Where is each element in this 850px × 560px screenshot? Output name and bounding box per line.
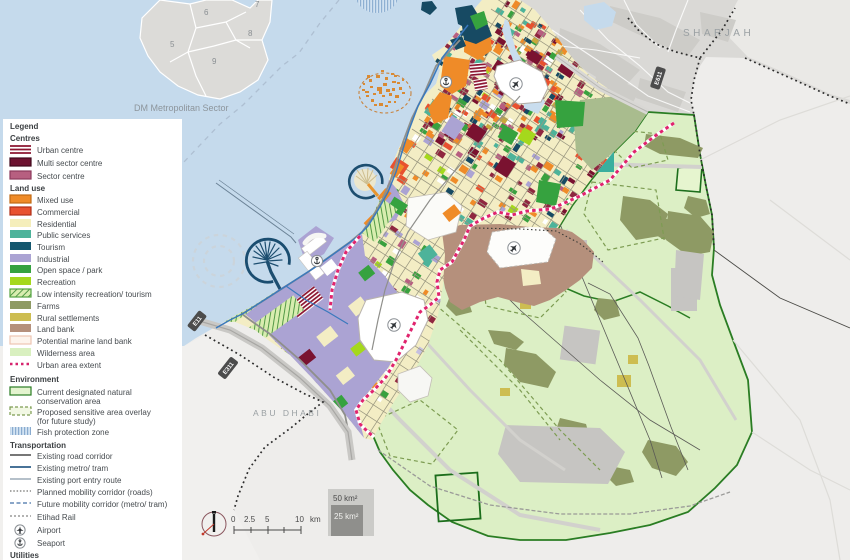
svg-text:0: 0 [231, 515, 236, 524]
svg-text:6: 6 [204, 8, 209, 17]
svg-text:Existing road corridor: Existing road corridor [37, 452, 113, 461]
svg-text:Commercial: Commercial [37, 208, 80, 217]
svg-text:Tourism: Tourism [37, 243, 65, 252]
svg-text:2.5: 2.5 [244, 515, 256, 524]
svg-text:25 km²: 25 km² [334, 512, 359, 521]
svg-text:Transportation: Transportation [10, 441, 66, 450]
svg-text:Existing port entry route: Existing port entry route [37, 476, 122, 485]
svg-text:Seaport: Seaport [37, 539, 66, 548]
svg-text:Farms: Farms [37, 302, 60, 311]
svg-text:Wilderness area: Wilderness area [37, 349, 95, 358]
svg-text:Urban area extent: Urban area extent [37, 361, 102, 370]
svg-text:km: km [310, 515, 321, 524]
svg-text:Residential: Residential [37, 220, 77, 229]
svg-text:Urban centre: Urban centre [37, 146, 84, 155]
svg-text:Potential marine land bank: Potential marine land bank [37, 337, 133, 346]
svg-text:Sector centre: Sector centre [37, 172, 85, 181]
svg-text:Proposed sensitive area overla: Proposed sensitive area overlay [37, 408, 151, 417]
svg-text:Centres: Centres [10, 134, 40, 143]
svg-text:ABU DHABI: ABU DHABI [253, 408, 321, 418]
svg-text:5: 5 [265, 515, 270, 524]
svg-text:Fish protection zone: Fish protection zone [37, 428, 110, 437]
svg-text:8: 8 [248, 29, 253, 38]
svg-text:Rural settlements: Rural settlements [37, 314, 99, 323]
svg-text:DM Metropolitan Sector: DM Metropolitan Sector [134, 103, 229, 113]
svg-text:Multi sector centre: Multi sector centre [37, 159, 103, 168]
svg-text:Environment: Environment [10, 375, 59, 384]
svg-text:Planned mobility corridor (roa: Planned mobility corridor (roads) [37, 488, 153, 497]
svg-text:Industrial: Industrial [37, 255, 70, 264]
svg-text:Legend: Legend [10, 122, 39, 131]
svg-text:conservation area: conservation area [37, 397, 101, 406]
svg-text:Recreation: Recreation [37, 278, 76, 287]
svg-text:Utilities: Utilities [10, 551, 39, 560]
svg-text:Existing metro/ tram: Existing metro/ tram [37, 464, 108, 473]
svg-text:Current designated natural: Current designated natural [37, 388, 132, 397]
svg-text:10: 10 [295, 515, 304, 524]
svg-text:Land use: Land use [10, 184, 46, 193]
svg-text:Public services: Public services [37, 231, 90, 240]
svg-text:Future mobility corridor (metr: Future mobility corridor (metro/ tram) [37, 500, 168, 509]
svg-text:5: 5 [170, 40, 175, 49]
svg-text:Mixed use: Mixed use [37, 196, 74, 205]
svg-text:Low intensity recreation/ tour: Low intensity recreation/ tourism [37, 290, 152, 299]
svg-text:Airport: Airport [37, 526, 61, 535]
svg-text:Land bank: Land bank [37, 325, 75, 334]
svg-text:7: 7 [255, 0, 260, 9]
svg-text:SHARJAH: SHARJAH [683, 28, 754, 39]
svg-text:Etihad Rail: Etihad Rail [37, 513, 76, 522]
svg-text:Open space / park: Open space / park [37, 266, 103, 275]
svg-text:9: 9 [212, 57, 217, 66]
svg-text:(for future study): (for future study) [37, 417, 96, 426]
svg-text:50 km²: 50 km² [333, 494, 358, 503]
